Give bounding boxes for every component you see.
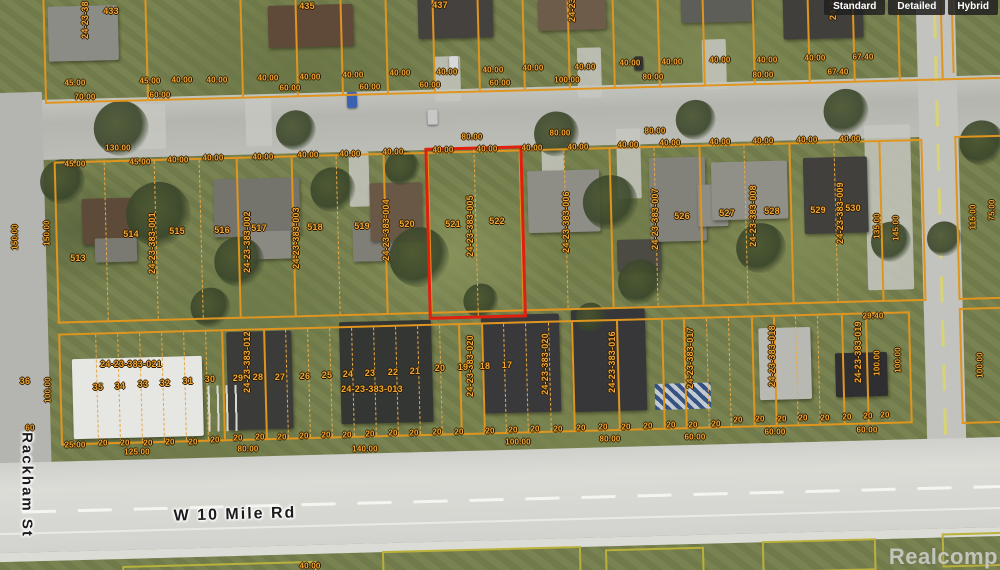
lot-split-line xyxy=(104,162,109,320)
lot-split-line xyxy=(548,323,552,431)
lot-split-line xyxy=(161,333,165,441)
parcel-boundary xyxy=(788,144,794,302)
lot-split-line xyxy=(336,156,341,314)
lot-split-line xyxy=(95,335,99,443)
parcel-boundary xyxy=(458,325,463,433)
lot-split-line xyxy=(395,327,399,435)
car xyxy=(427,110,437,125)
parcel-boundary-south xyxy=(762,538,877,570)
lot-split-line xyxy=(183,332,187,440)
parcel-boundary xyxy=(481,324,486,432)
lot-split-line xyxy=(743,146,748,304)
lot-split-line xyxy=(205,332,209,440)
parcel-boundary xyxy=(751,317,756,425)
parcel-boundary xyxy=(806,0,811,82)
driveway xyxy=(245,98,272,147)
parcel-boundary-south xyxy=(122,561,317,570)
parcel-boundary xyxy=(221,331,226,439)
parcel-boundary xyxy=(476,0,481,90)
parcel-boundary xyxy=(236,159,242,317)
lot-split-line xyxy=(329,328,333,436)
parcel-boundary xyxy=(291,157,297,315)
parcel-boundary xyxy=(611,0,616,87)
parcel-boundary xyxy=(878,142,884,300)
parcel-boundary xyxy=(566,0,571,88)
lot-split-line xyxy=(351,328,355,436)
map-style-button-detailed[interactable]: Detailed xyxy=(888,0,945,15)
parcel-boundary xyxy=(773,317,778,425)
parcel-boundary xyxy=(865,314,870,422)
parcel-block-mid-right xyxy=(954,134,1000,300)
lot-split-line xyxy=(833,143,838,301)
tree xyxy=(93,100,149,156)
parcel-boundary xyxy=(608,149,614,307)
map-style-button-hybrid[interactable]: Hybrid xyxy=(948,0,998,15)
lot-split-line xyxy=(706,319,710,427)
parcel-block-bottom-right xyxy=(959,306,1000,424)
selected-parcel-boundary[interactable] xyxy=(424,145,526,320)
parcel-boundary xyxy=(751,0,756,83)
lot-split-line xyxy=(373,327,377,435)
map-style-toolbar: StandardDetailedHybrid xyxy=(824,0,998,15)
lot-split-line xyxy=(795,316,799,424)
parcel-boundary xyxy=(656,0,661,86)
lot-split-line xyxy=(154,161,159,319)
lot-split-line xyxy=(563,150,568,308)
lot-split-line xyxy=(728,318,732,426)
lot-split-line xyxy=(817,316,821,424)
lot-split-line xyxy=(139,333,143,441)
parcel-block-bottom xyxy=(58,311,913,445)
lot-split-line xyxy=(307,329,311,437)
parcel-boundary xyxy=(144,0,149,99)
lot-split-line xyxy=(473,150,478,316)
lot-split-line xyxy=(199,160,204,318)
parcel-boundary xyxy=(384,0,389,93)
tree xyxy=(822,88,868,134)
lot-split-line xyxy=(525,323,529,431)
parcel-boundary xyxy=(698,147,704,305)
parcel-boundary xyxy=(701,0,706,85)
parcel-boundary xyxy=(571,322,576,430)
parcel-boundary-south xyxy=(382,546,582,570)
lot-split-line xyxy=(417,326,421,434)
parcel-boundary xyxy=(841,315,846,423)
map-overlay-tilt-layer xyxy=(0,0,1000,570)
parcel-boundary xyxy=(294,0,299,95)
lot-split-line xyxy=(117,334,121,442)
lot-split-line xyxy=(503,324,507,432)
parcel-boundary xyxy=(383,155,389,313)
lot-split-line xyxy=(653,148,658,306)
parcel-boundary xyxy=(521,0,526,89)
parcel-boundary-south xyxy=(605,547,705,570)
map-viewport[interactable]: W 10 Mile Rd Rackham St 24-23-383-00124-… xyxy=(0,0,1000,570)
realcomp-watermark: Realcomp xyxy=(889,544,998,570)
parcel-boundary xyxy=(239,0,244,97)
lot-split-line xyxy=(285,330,289,438)
parcel-boundary xyxy=(431,0,436,92)
parcel-boundary xyxy=(263,330,268,438)
parcel-boundary xyxy=(661,320,666,428)
parcel-boundary xyxy=(683,319,688,427)
map-style-button-standard[interactable]: Standard xyxy=(824,0,885,15)
parcel-boundary xyxy=(616,321,621,429)
parcel-boundary xyxy=(339,0,344,94)
lot-split-line xyxy=(439,326,443,434)
